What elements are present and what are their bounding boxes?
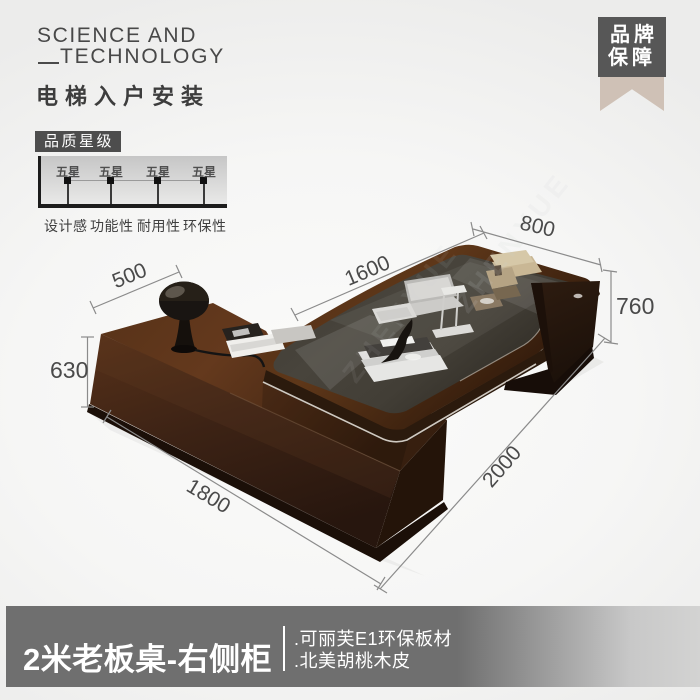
svg-text:2000: 2000 — [478, 442, 526, 492]
svg-text:500: 500 — [109, 259, 150, 293]
svg-text:760: 760 — [616, 293, 654, 319]
svg-text:630: 630 — [50, 357, 88, 383]
